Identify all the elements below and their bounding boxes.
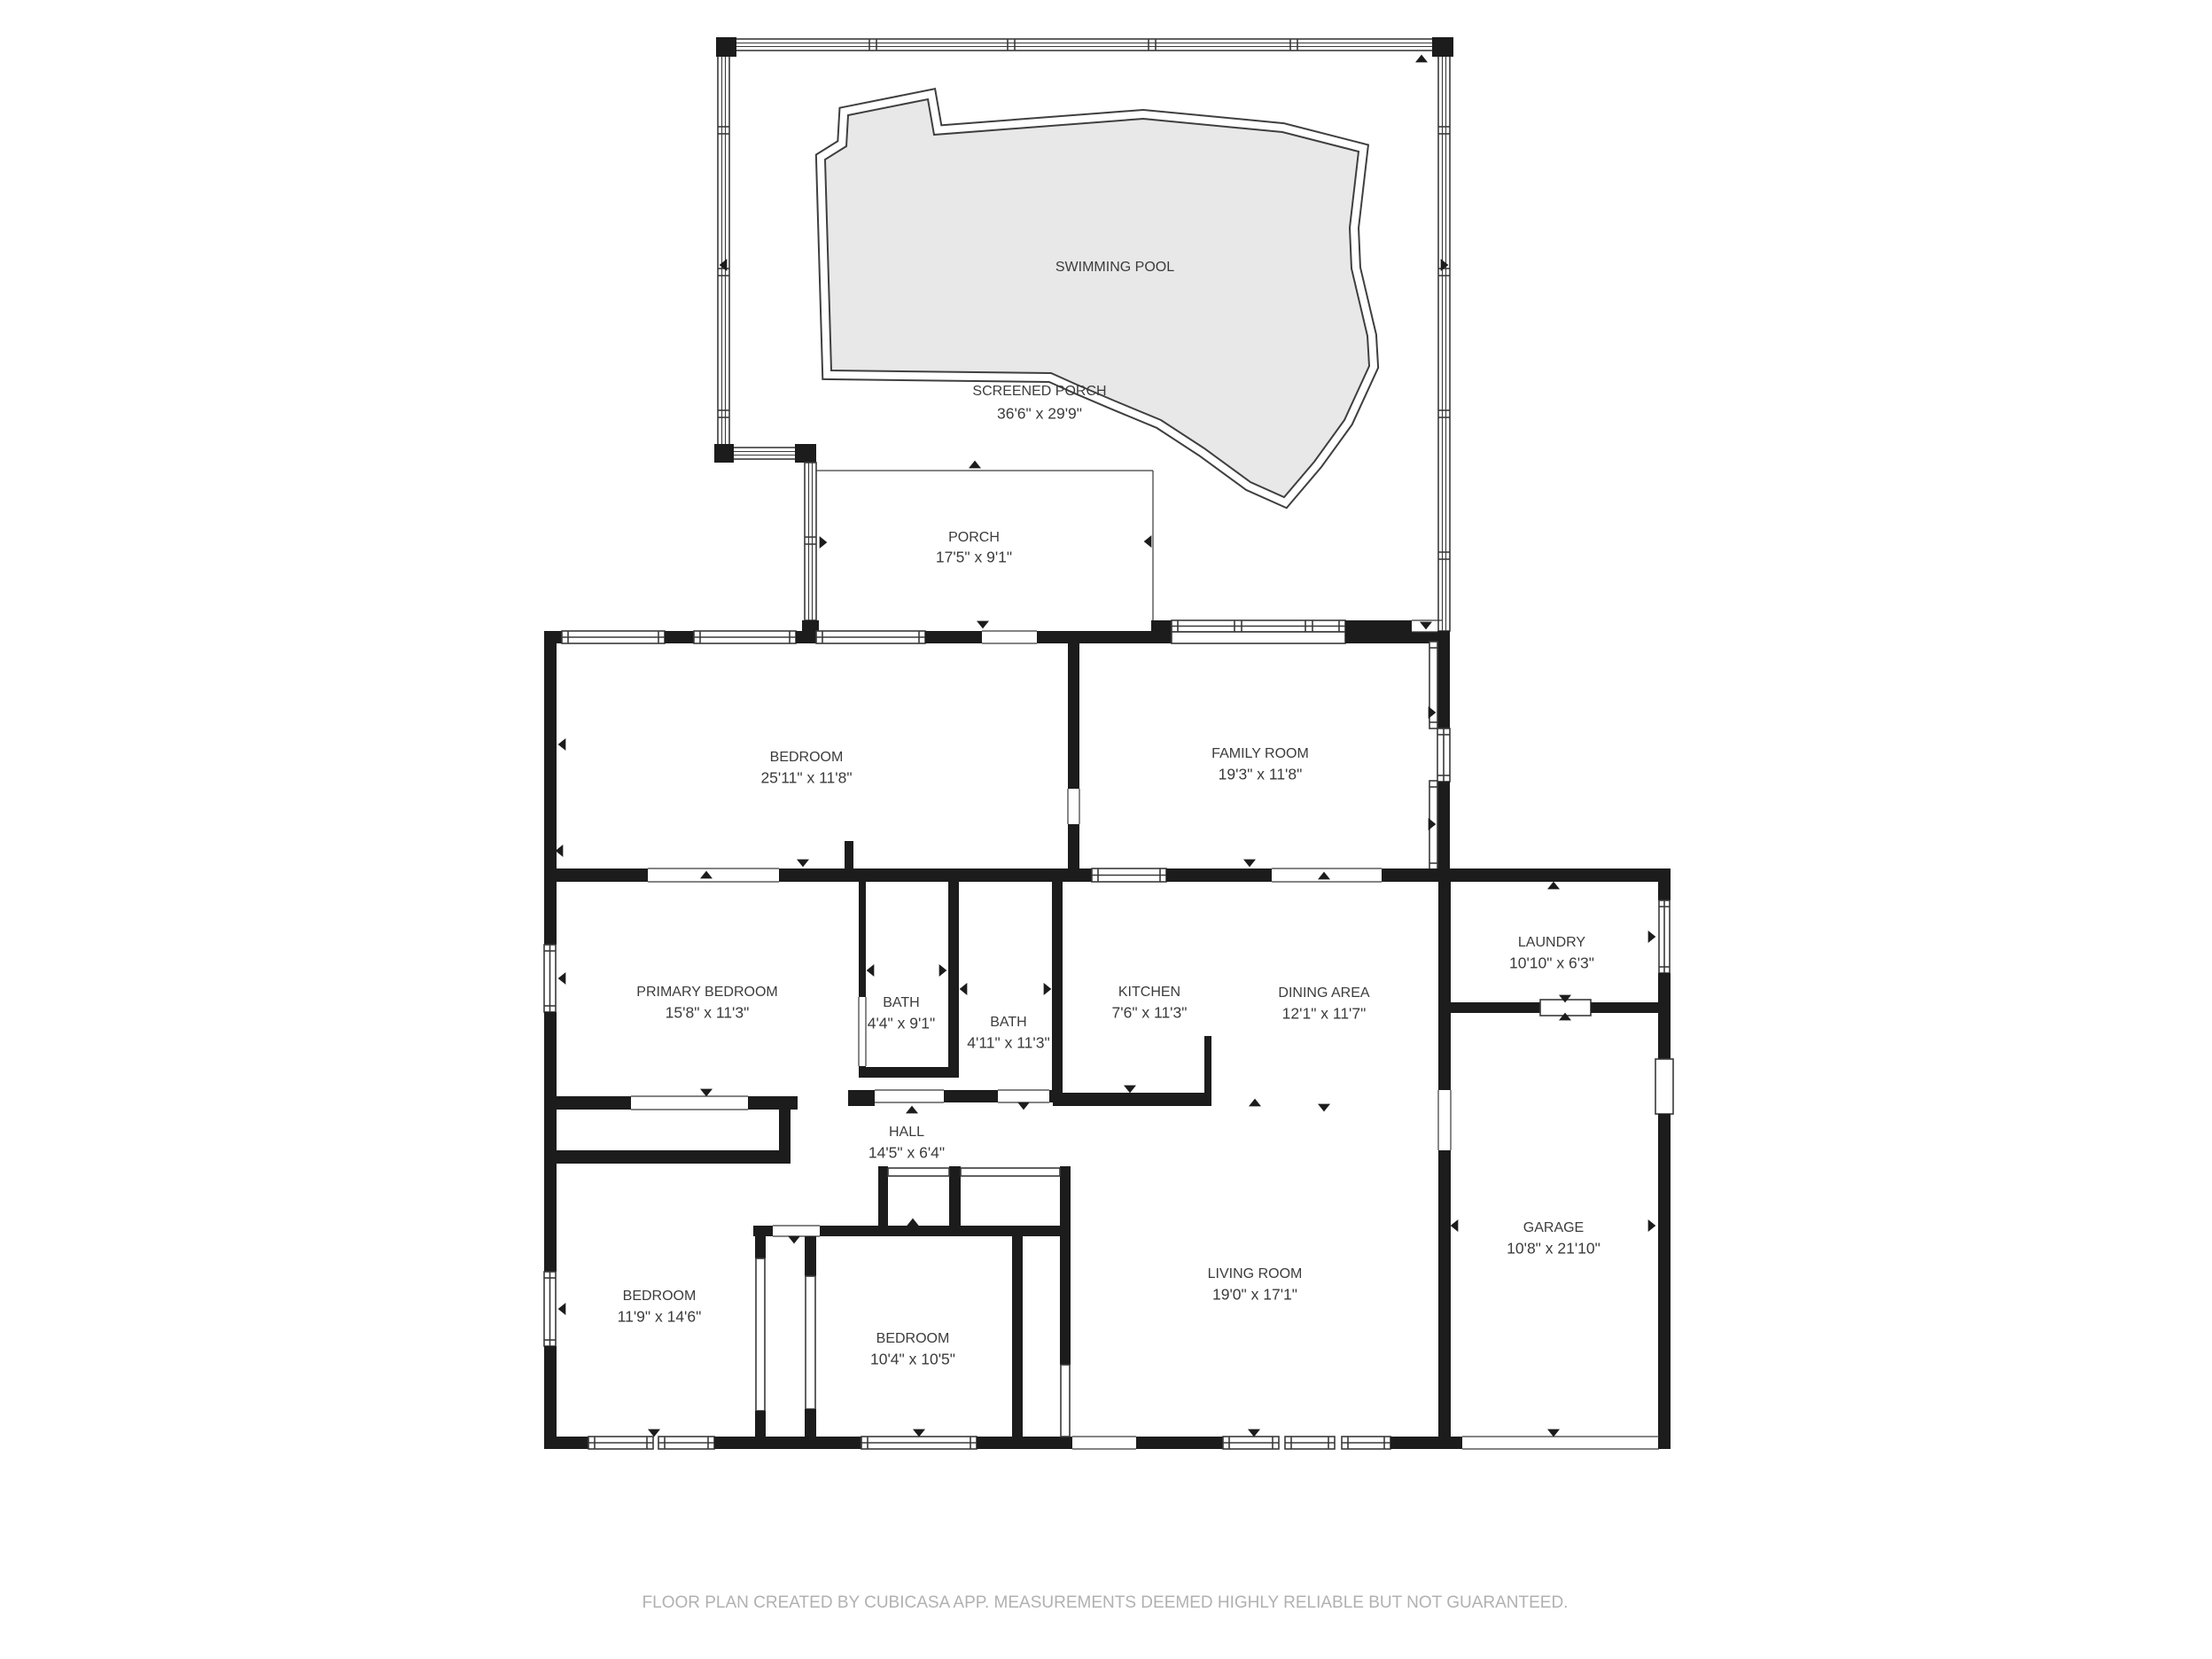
svg-text:4'4" x 9'1": 4'4" x 9'1" bbox=[868, 1015, 936, 1032]
svg-text:LIVING ROOM: LIVING ROOM bbox=[1208, 1266, 1303, 1281]
svg-text:FAMILY ROOM: FAMILY ROOM bbox=[1211, 746, 1309, 761]
svg-text:BATH: BATH bbox=[883, 995, 919, 1010]
svg-text:17'5" x 9'1": 17'5" x 9'1" bbox=[936, 549, 1012, 566]
svg-text:4'11" x 11'3": 4'11" x 11'3" bbox=[967, 1034, 1049, 1052]
svg-text:7'6" x 11'3": 7'6" x 11'3" bbox=[1112, 1004, 1188, 1022]
svg-text:14'5" x 6'4": 14'5" x 6'4" bbox=[868, 1144, 945, 1162]
svg-text:LAUNDRY: LAUNDRY bbox=[1518, 935, 1586, 950]
svg-text:PORCH: PORCH bbox=[948, 530, 1000, 545]
svg-text:SCREENED PORCH: SCREENED PORCH bbox=[972, 384, 1106, 399]
svg-text:25'11" x 11'8": 25'11" x 11'8" bbox=[760, 769, 852, 787]
svg-text:10'10" x 6'3": 10'10" x 6'3" bbox=[1509, 954, 1594, 972]
svg-text:KITCHEN: KITCHEN bbox=[1118, 985, 1180, 1000]
svg-text:19'3" x 11'8": 19'3" x 11'8" bbox=[1219, 766, 1303, 783]
svg-text:DINING AREA: DINING AREA bbox=[1278, 985, 1369, 1001]
svg-text:BEDROOM: BEDROOM bbox=[623, 1289, 697, 1304]
svg-text:SWIMMING POOL: SWIMMING POOL bbox=[1055, 260, 1174, 275]
svg-text:12'1" x 11'7": 12'1" x 11'7" bbox=[1282, 1005, 1367, 1023]
svg-text:PRIMARY BEDROOM: PRIMARY BEDROOM bbox=[636, 985, 777, 1000]
svg-text:11'9" x 14'6": 11'9" x 14'6" bbox=[618, 1308, 702, 1326]
svg-text:19'0" x 17'1": 19'0" x 17'1" bbox=[1212, 1286, 1297, 1304]
svg-text:15'8" x 11'3": 15'8" x 11'3" bbox=[666, 1004, 750, 1022]
svg-text:HALL: HALL bbox=[889, 1125, 924, 1140]
svg-text:BATH: BATH bbox=[990, 1015, 1026, 1030]
svg-text:BEDROOM: BEDROOM bbox=[876, 1331, 950, 1346]
svg-text:10'4" x 10'5": 10'4" x 10'5" bbox=[870, 1351, 955, 1368]
svg-text:FLOOR PLAN CREATED BY CUBICASA: FLOOR PLAN CREATED BY CUBICASA APP. MEAS… bbox=[643, 1593, 1569, 1612]
svg-text:36'6" x 29'9": 36'6" x 29'9" bbox=[997, 405, 1082, 423]
svg-text:BEDROOM: BEDROOM bbox=[770, 750, 844, 765]
svg-text:GARAGE: GARAGE bbox=[1523, 1220, 1584, 1235]
svg-text:10'8" x 21'10": 10'8" x 21'10" bbox=[1507, 1240, 1601, 1258]
